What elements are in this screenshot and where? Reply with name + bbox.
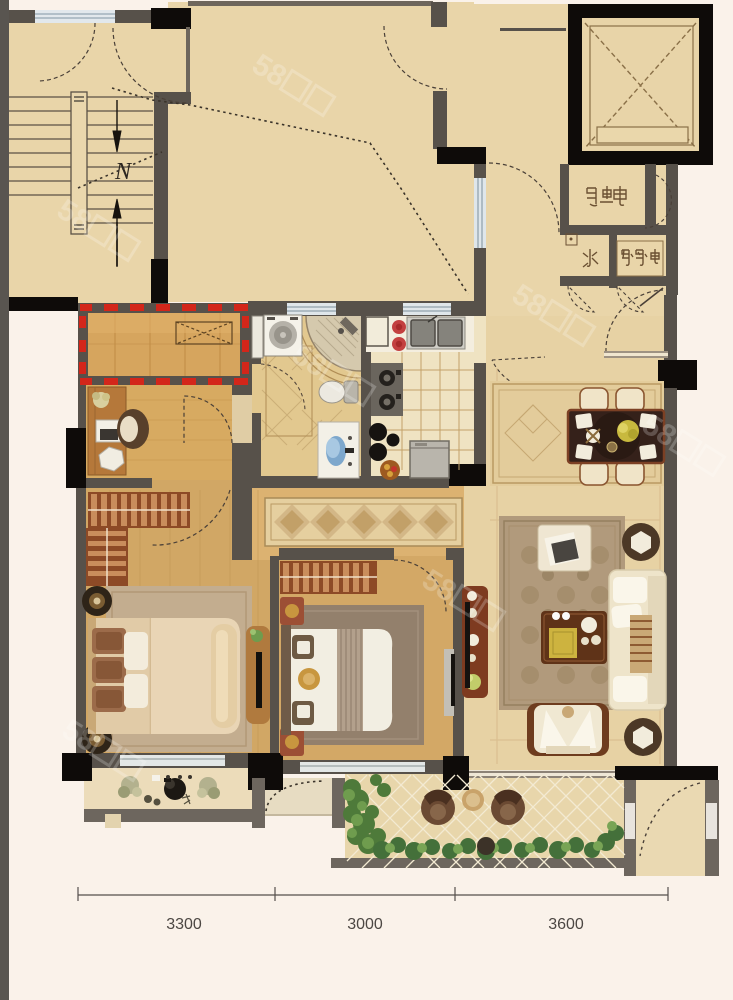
svg-text:3000: 3000 bbox=[347, 916, 383, 933]
svg-text:3300: 3300 bbox=[166, 916, 202, 933]
svg-text:3600: 3600 bbox=[548, 916, 584, 933]
